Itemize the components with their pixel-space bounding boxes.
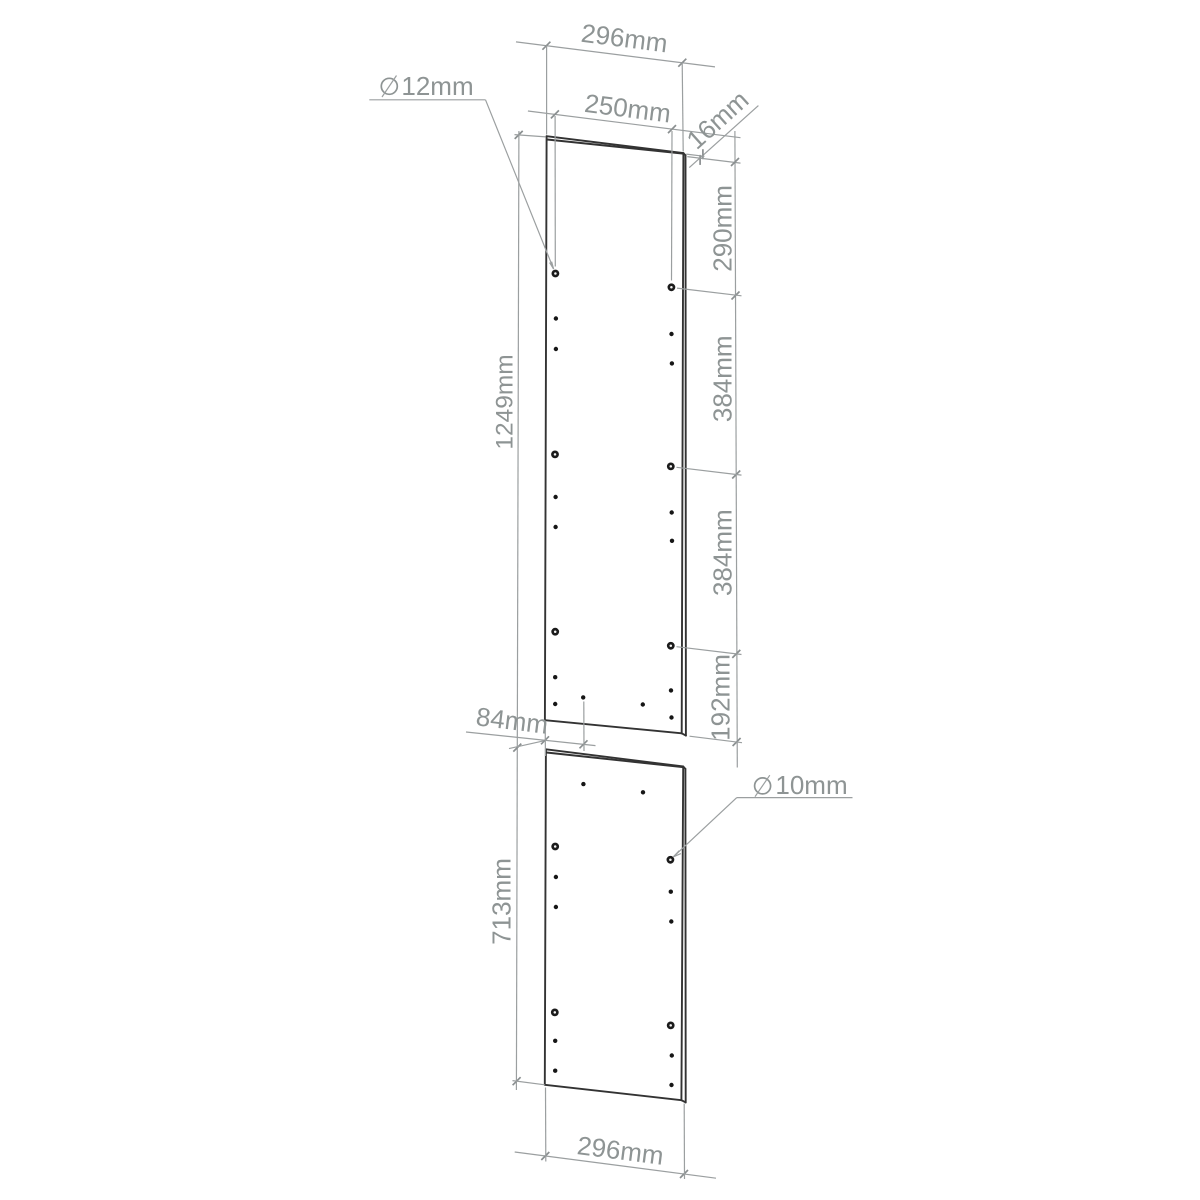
svg-text:384mm: 384mm	[708, 335, 738, 422]
svg-text:1249mm: 1249mm	[492, 354, 519, 449]
svg-text:12mm: 12mm	[401, 71, 473, 101]
svg-text:290mm: 290mm	[708, 185, 738, 272]
svg-text:10mm: 10mm	[775, 770, 847, 800]
svg-text:713mm: 713mm	[487, 858, 517, 945]
svg-text:384mm: 384mm	[708, 509, 738, 596]
svg-text:192mm: 192mm	[706, 654, 736, 741]
